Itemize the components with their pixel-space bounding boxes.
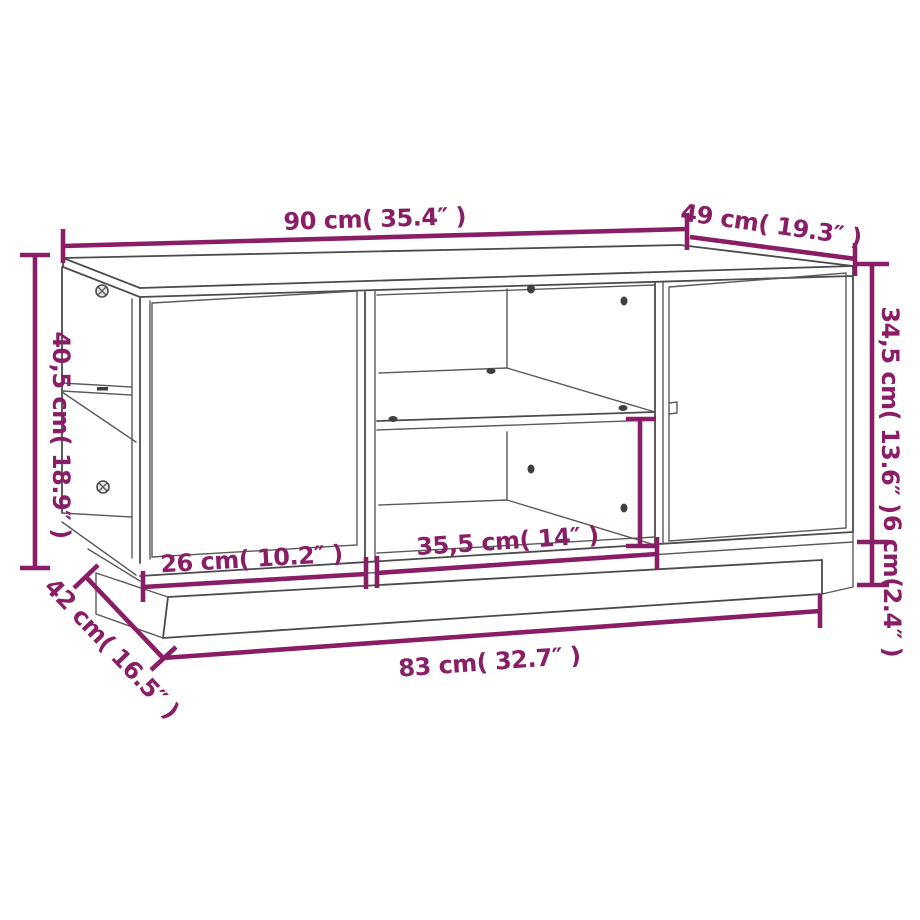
dimension-base-depth: 42 cm( 16.5″ ) (39, 565, 185, 724)
dimension-height-left-label: 40,5 cm( 18.9″ ) (47, 331, 75, 538)
diagram-canvas: 90 cm( 35.4″ ) 49 cm( 19.3″ ) 40,5 cm( 1… (0, 0, 920, 920)
dimension-base-width: 83 cm( 32.7″ ) (163, 594, 820, 683)
tabletop (63, 245, 853, 297)
dimension-plinth-height-label: 6 cm(2.4″ ) (878, 515, 906, 657)
dimension-door-width-label: 26 cm( 10.2″ ) (160, 540, 344, 579)
dimension-height-right: 34,5 cm( 13.6″ ) (857, 264, 904, 542)
left-door-panel (152, 291, 357, 557)
door-handle-notch (669, 402, 677, 414)
dimension-shelf-width-label: 35,5 cm( 14″ ) (415, 521, 599, 561)
shelf-pin-icon (389, 285, 628, 513)
middle-shelves (377, 285, 655, 553)
dimension-base-width-label: 83 cm( 32.7″ ) (397, 641, 581, 682)
dimension-top-width-label: 90 cm( 35.4″ ) (283, 202, 466, 236)
right-door-panel (669, 273, 846, 541)
dimension-top-depth-label: 49 cm( 19.3″ ) (679, 199, 864, 252)
dimension-plinth-height: 6 cm(2.4″ ) (857, 515, 906, 657)
dimension-inner-height (626, 419, 656, 546)
dimension-height-right-label: 34,5 cm( 13.6″ ) (876, 306, 904, 513)
screw-icon (97, 481, 109, 493)
furniture-outline (62, 245, 853, 638)
shelf-pin-icon (97, 387, 108, 391)
dimension-top-width: 90 cm( 35.4″ ) (63, 202, 687, 263)
dimension-height-left: 40,5 cm( 18.9″ ) (20, 255, 75, 568)
coffee-table-dimension-diagram: 90 cm( 35.4″ ) 49 cm( 19.3″ ) 40,5 cm( 1… (0, 0, 920, 920)
screw-icon (96, 285, 108, 297)
